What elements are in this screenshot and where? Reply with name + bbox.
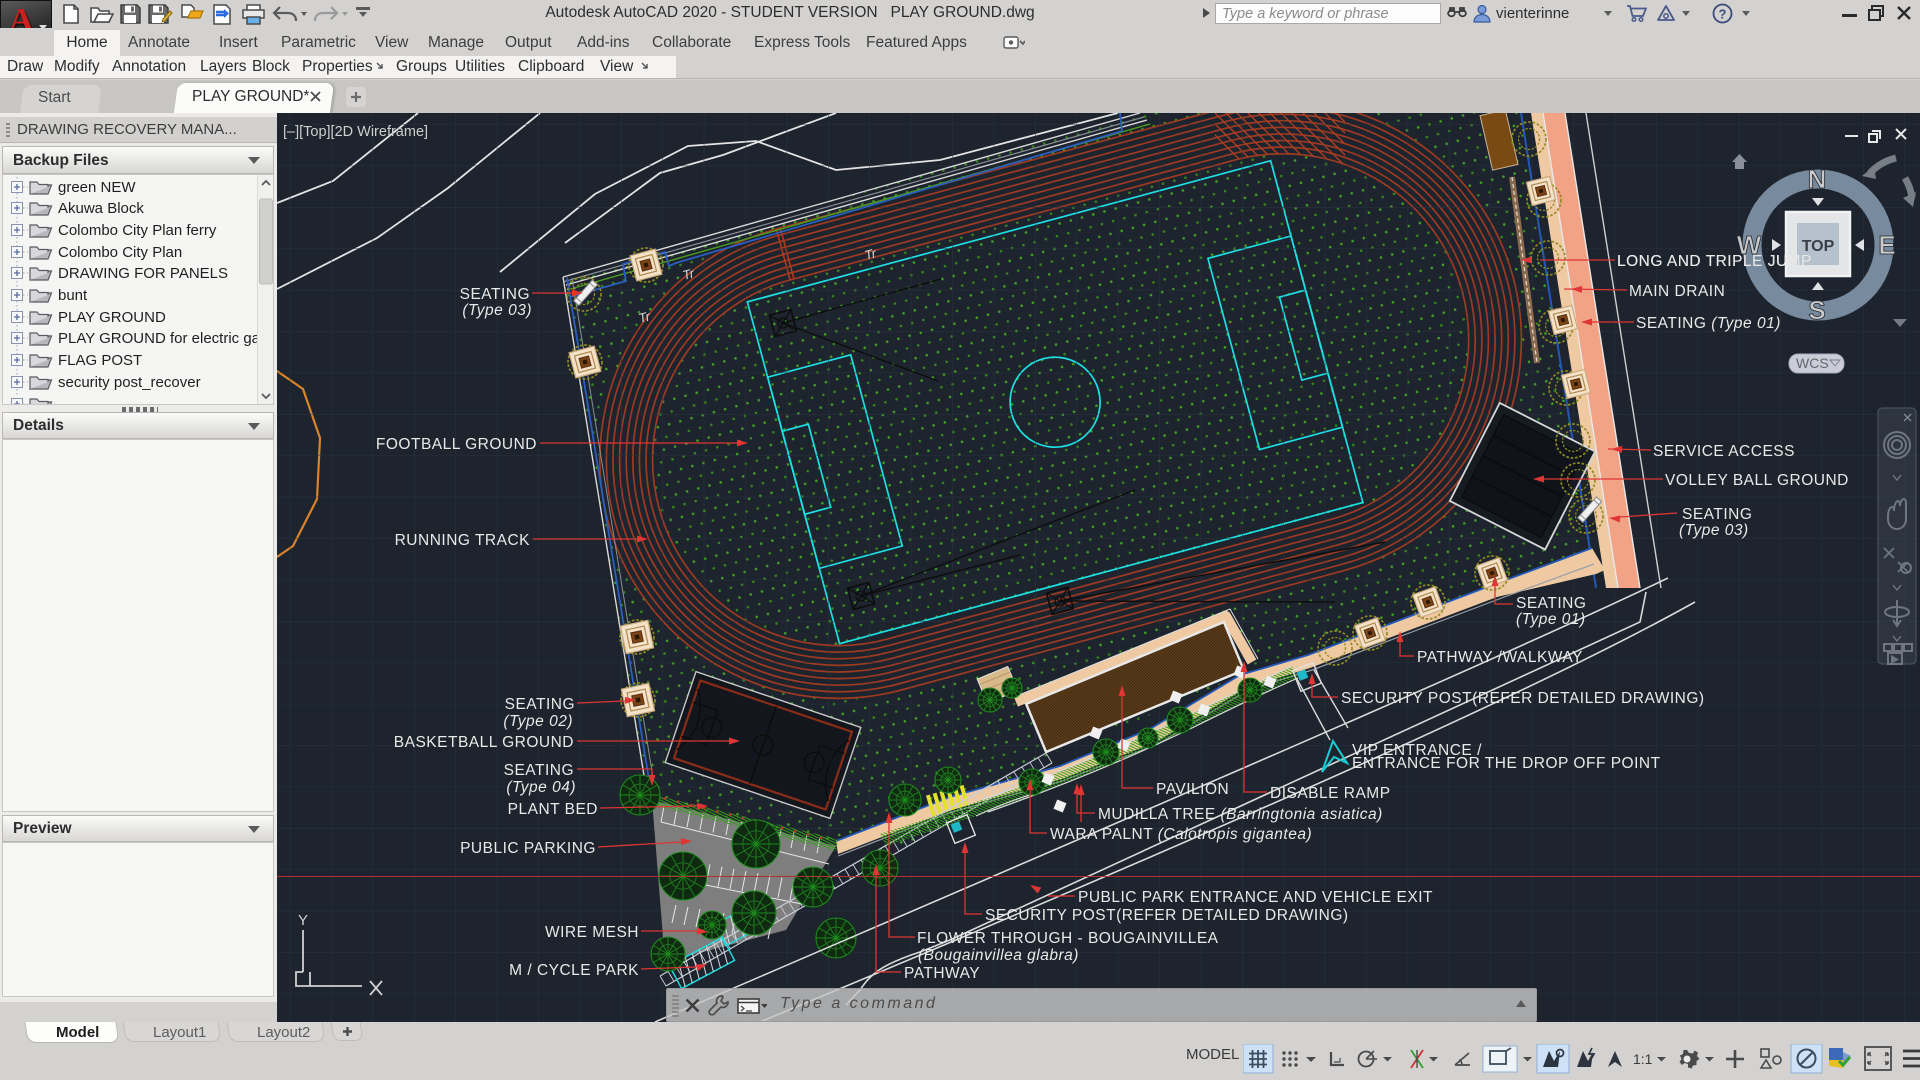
- svg-text:(Type 02): (Type 02): [503, 713, 573, 730]
- svg-text:SECURITY POST(REFER DETAILED D: SECURITY POST(REFER DETAILED DRAWING): [985, 907, 1349, 924]
- svg-text:[–][Top][2D Wireframe]: [–][Top][2D Wireframe]: [283, 124, 428, 140]
- svg-text:?: ?: [1719, 7, 1727, 22]
- svg-text:SERVICE ACCESS: SERVICE ACCESS: [1653, 443, 1795, 460]
- svg-text:LONG AND TRIPLE JUMP: LONG AND TRIPLE JUMP: [1617, 253, 1812, 270]
- svg-text:M / CYCLE PARK: M / CYCLE PARK: [509, 962, 639, 979]
- svg-text:FLOWER THROUGH - BOUGAINVILLEA: FLOWER THROUGH - BOUGAINVILLEA: [917, 930, 1219, 947]
- svg-text:SEATING: SEATING: [460, 286, 530, 303]
- svg-text:MUDILLA TREE (Barringtonia asi: MUDILLA TREE (Barringtonia asiatica): [1098, 806, 1383, 823]
- svg-text:DRAWING FOR PANELS: DRAWING FOR PANELS: [58, 265, 228, 282]
- svg-text:(Type 03): (Type 03): [462, 302, 532, 319]
- svg-text:DISABLE RAMP: DISABLE RAMP: [1270, 785, 1391, 802]
- svg-text:PATHWAY: PATHWAY: [904, 965, 980, 982]
- svg-text:MAIN DRAIN: MAIN DRAIN: [1629, 283, 1725, 300]
- svg-text:Y: Y: [298, 912, 308, 929]
- svg-text:SECURITY POST(REFER DETAILED D: SECURITY POST(REFER DETAILED DRAWING): [1341, 690, 1705, 707]
- svg-text:SEATING: SEATING: [505, 696, 575, 713]
- svg-text:green NEW: green NEW: [58, 179, 136, 196]
- svg-text:(Type 04): (Type 04): [506, 779, 576, 796]
- svg-text:bunt: bunt: [58, 287, 88, 304]
- svg-text:PUBLIC PARKING: PUBLIC PARKING: [460, 840, 596, 857]
- svg-text:S: S: [1808, 295, 1825, 325]
- svg-text:PLANT BED: PLANT BED: [508, 801, 598, 818]
- svg-text:WARA PALNT (Calotropis gigante: WARA PALNT (Calotropis gigantea): [1050, 826, 1312, 843]
- svg-text:FLAG POST: FLAG POST: [58, 352, 142, 369]
- svg-text:VOLLEY BALL GROUND: VOLLEY BALL GROUND: [1665, 472, 1849, 489]
- svg-text:PLAY GROUND: PLAY GROUND: [58, 309, 166, 326]
- svg-text:ENTRANCE FOR THE DROP OFF POIN: ENTRANCE FOR THE DROP OFF POINT: [1352, 755, 1661, 772]
- svg-text:PAVILION: PAVILION: [1156, 781, 1229, 798]
- svg-text:1:1: 1:1: [1633, 1051, 1653, 1067]
- svg-text:PLAY GROUND for electric gate: PLAY GROUND for electric gate: [58, 330, 273, 347]
- svg-text:(Bougainvillea glabra): (Bougainvillea glabra): [918, 947, 1079, 964]
- svg-text:Akuwa Block: Akuwa Block: [58, 200, 144, 217]
- svg-text:PUBLIC PARK ENTRANCE AND VEHIC: PUBLIC PARK ENTRANCE AND VEHICLE EXIT: [1078, 889, 1433, 906]
- svg-text:WCS: WCS: [1796, 355, 1829, 371]
- svg-text:(Type 01): (Type 01): [1516, 611, 1586, 628]
- svg-text:Colombo City Plan: Colombo City Plan: [58, 244, 182, 261]
- svg-text:BASKETBALL GROUND: BASKETBALL GROUND: [394, 734, 574, 751]
- svg-text:Colombo City Plan ferry: Colombo City Plan ferry: [58, 222, 217, 239]
- svg-text:SEATING: SEATING: [1682, 506, 1752, 523]
- svg-text:SEATING (Type 01): SEATING (Type 01): [1636, 315, 1781, 332]
- svg-text:E: E: [1878, 230, 1895, 260]
- svg-text:FOOTBALL GROUND: FOOTBALL GROUND: [376, 436, 537, 453]
- svg-text:WIRE MESH: WIRE MESH: [545, 924, 639, 941]
- svg-text:N: N: [1808, 164, 1827, 194]
- svg-text:(Type 03): (Type 03): [1679, 522, 1749, 539]
- svg-text:SEATING: SEATING: [504, 762, 574, 779]
- svg-text:SEATING: SEATING: [1516, 595, 1586, 612]
- svg-text:RUNNING TRACK: RUNNING TRACK: [395, 532, 531, 549]
- svg-text:security post_recover: security post_recover: [58, 374, 201, 391]
- svg-text:PATHWAY /WALKWAY: PATHWAY /WALKWAY: [1417, 649, 1583, 666]
